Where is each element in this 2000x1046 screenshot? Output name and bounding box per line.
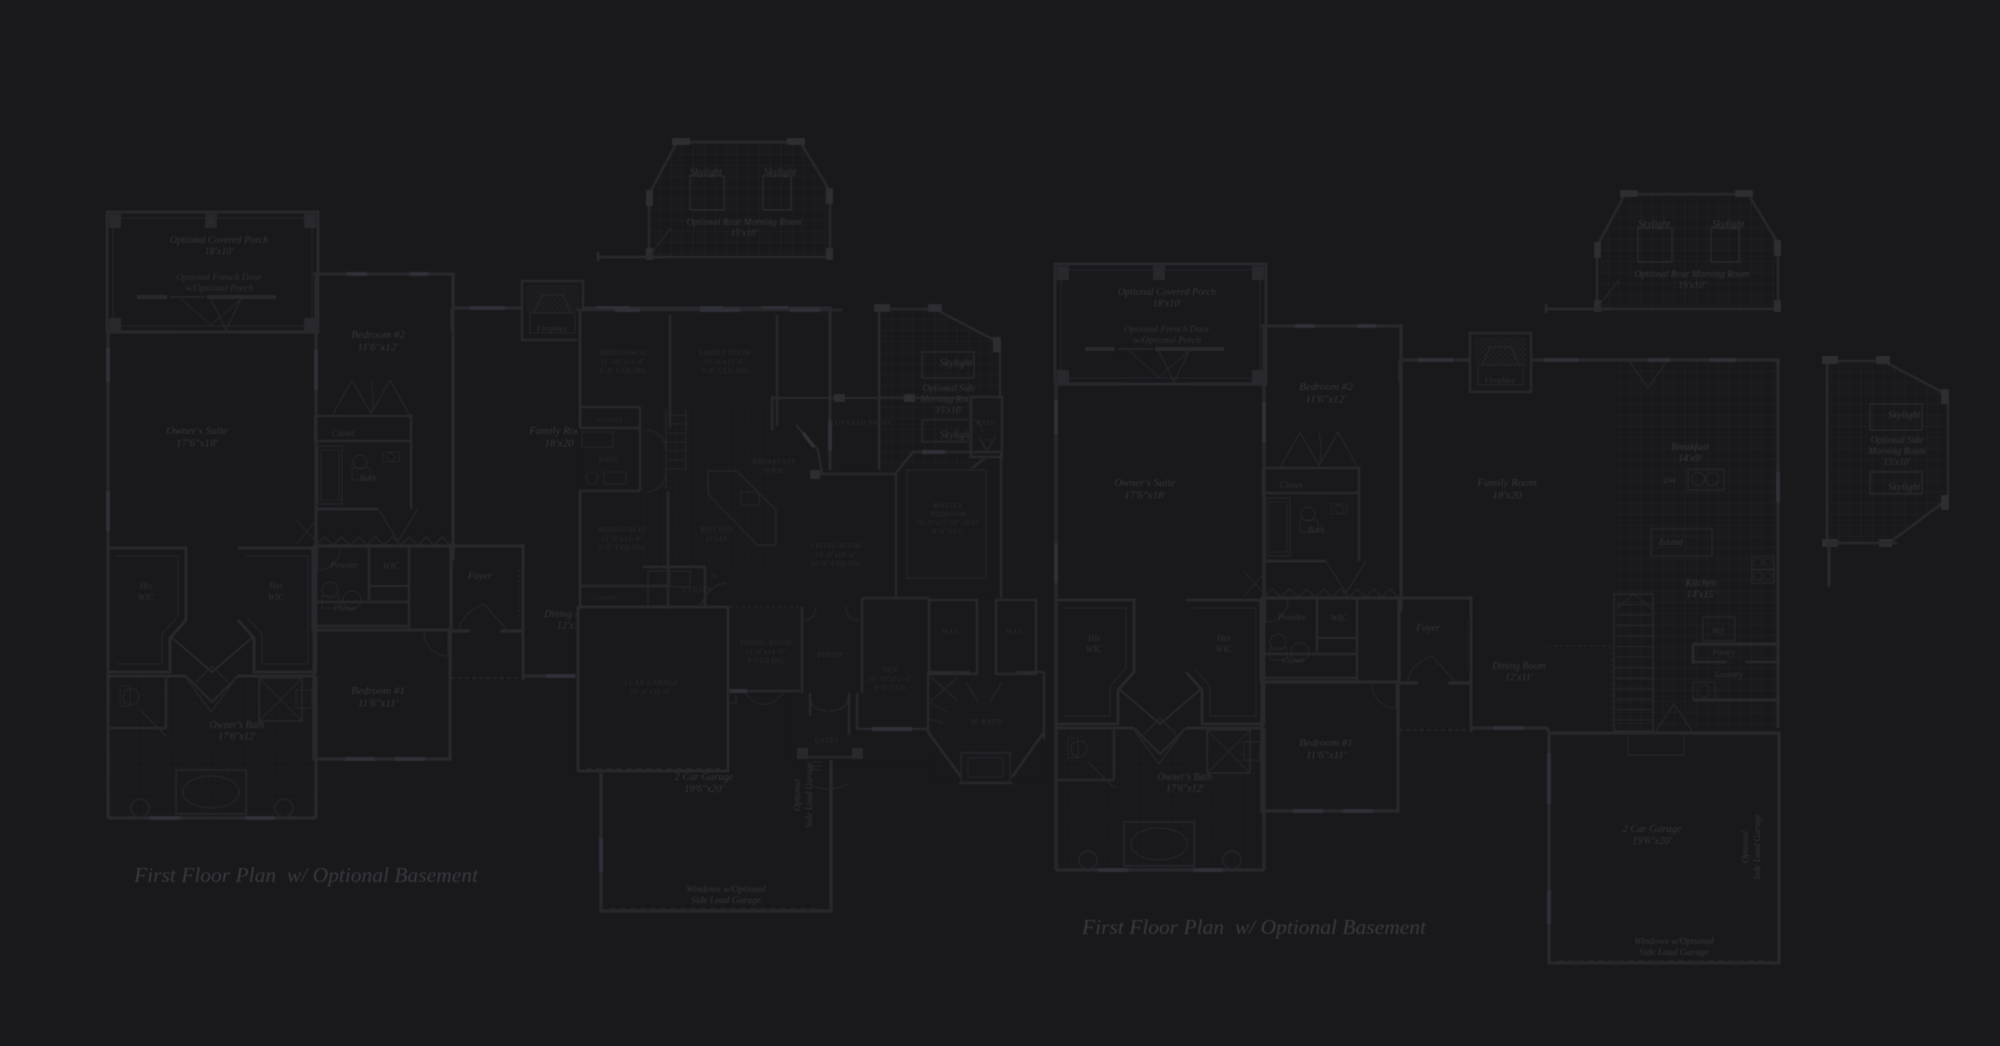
svg-text:MASTER: MASTER <box>933 503 963 510</box>
svg-text:9'-8" CEILING: 9'-8" CEILING <box>701 367 748 375</box>
svg-text:LIVING ROOM: LIVING ROOM <box>811 542 862 550</box>
svg-text:10′-10″x11′-2″: 10′-10″x11′-2″ <box>867 675 913 683</box>
svg-text:FOYER: FOYER <box>817 651 842 659</box>
svg-text:10′-0″ CEILING: 10′-0″ CEILING <box>810 560 861 568</box>
svg-text:CLOSET: CLOSET <box>591 595 617 602</box>
svg-text:COVERED PATIO: COVERED PATIO <box>830 419 889 427</box>
svg-text:W: W <box>712 574 718 580</box>
svg-text:BATH: BATH <box>599 457 618 464</box>
svg-text:11′-0″x11′-4″: 11′-0″x11′-4″ <box>601 535 642 543</box>
svg-text:16′-0″x13′-10″+BAY: 16′-0″x13′-10″+BAY <box>916 520 979 527</box>
svg-text:9' CEILING: 9' CEILING <box>747 657 785 665</box>
svg-text:11′-0″x14′-0″: 11′-0″x14′-0″ <box>745 648 787 656</box>
svg-text:3 CAR GARAGE: 3 CAR GARAGE <box>623 679 679 687</box>
svg-text:W.I.C.: W.I.C. <box>942 628 962 636</box>
svg-text:ENTRY: ENTRY <box>814 737 840 745</box>
svg-text:9'-0" CLG: 9'-0" CLG <box>874 684 906 692</box>
svg-text:11′-10″x11′-4″: 11′-10″x11′-4″ <box>600 358 645 366</box>
svg-text:9'-0" CEILING: 9'-0" CEILING <box>598 544 645 552</box>
svg-text:BREAKFAST: BREAKFAST <box>752 458 795 466</box>
svg-text:19′-0″x15′-8″: 19′-0″x15′-8″ <box>704 358 746 366</box>
svg-text:BEDROOM: BEDROOM <box>930 512 966 519</box>
svg-text:FAMILY ROOM: FAMILY ROOM <box>699 349 751 357</box>
svg-text:16′-0″x18′-4″: 16′-0″x18′-4″ <box>815 551 857 559</box>
svg-text:CLOSET: CLOSET <box>597 417 623 424</box>
svg-text:DINING ROOM: DINING ROOM <box>741 639 792 647</box>
svg-text:BEDROOM #3: BEDROOM #3 <box>599 526 646 534</box>
svg-text:W.I.C.: W.I.C. <box>1006 628 1026 636</box>
svg-text:KITCHEN: KITCHEN <box>701 526 734 534</box>
svg-text:9'-8" CEILING: 9'-8" CEILING <box>599 367 646 375</box>
svg-text:9'-0" CLG: 9'-0" CLG <box>932 529 963 536</box>
svg-text:NOOK: NOOK <box>763 467 784 475</box>
svg-text:19′-4″x31′-0″: 19′-4″x31′-0″ <box>630 688 673 696</box>
svg-text:DEN: DEN <box>882 666 897 674</box>
svg-text:11′x14′: 11′x14′ <box>706 535 729 543</box>
svg-text:BEDROOM #2: BEDROOM #2 <box>600 349 647 357</box>
svg-text:M. BATH: M. BATH <box>971 718 1002 726</box>
